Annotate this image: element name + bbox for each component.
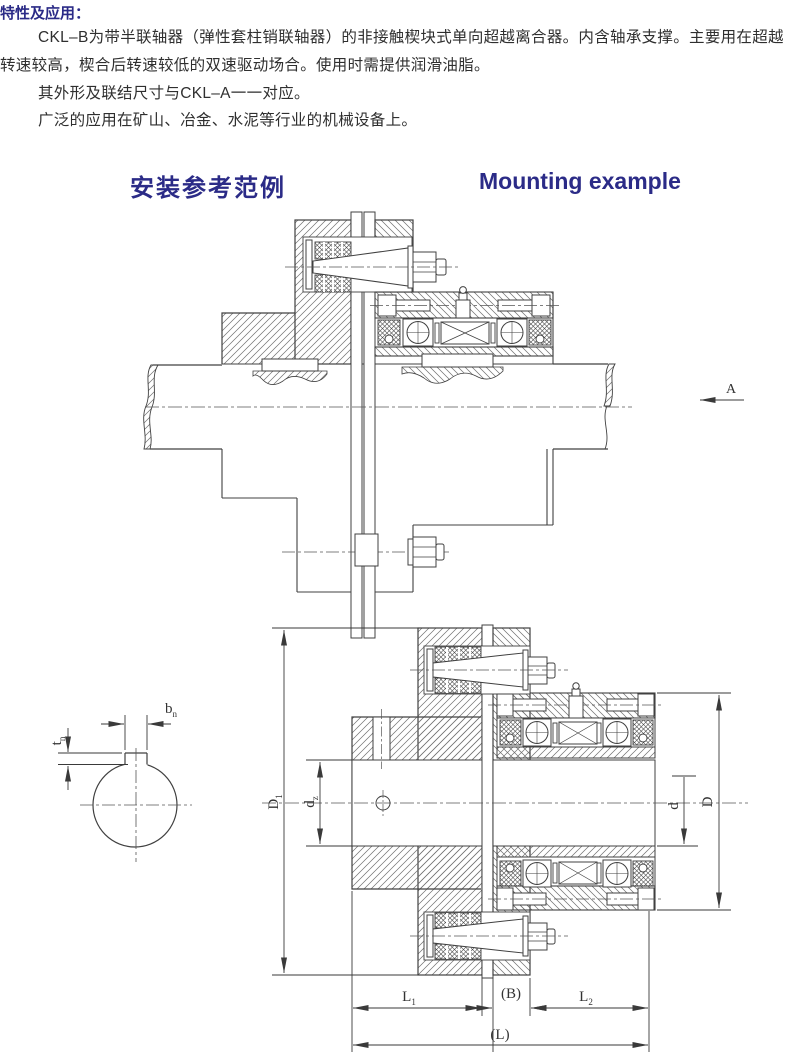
keyway-section <box>253 371 327 385</box>
elastic-pin-assembly <box>410 912 568 960</box>
exterior-outline <box>222 449 553 592</box>
dim-label-tn: tn <box>49 736 67 745</box>
dim-b-n <box>101 715 171 750</box>
dim-label-L: (L) <box>490 1027 509 1043</box>
dimension-drawing: bn tn <box>49 625 748 1052</box>
view-label: A <box>726 382 737 397</box>
key <box>262 359 318 371</box>
keyway-detail: bn tn <box>49 701 192 862</box>
mounting-example-drawing: A <box>144 212 744 638</box>
bearing-row-bottom <box>500 860 653 887</box>
technical-drawings: A bn <box>0 0 800 1058</box>
dim-label-d: d <box>666 802 682 810</box>
clutch-housing <box>370 287 560 384</box>
dim-label-B: (B) <box>501 986 521 1002</box>
bolt-nut <box>413 537 436 567</box>
dim-label-L1: L1 <box>402 989 416 1007</box>
dim-label-L2: L2 <box>579 989 593 1007</box>
coupling-section <box>262 625 748 978</box>
bearing-row-top <box>500 719 653 746</box>
catalog-page: 特性及应用： CKL–B为带半联轴器（弹性套柱销联轴器）的非接触楔块式单向超越离… <box>0 0 800 1058</box>
keyway-section <box>402 367 503 383</box>
grease-fitting <box>456 287 470 318</box>
sleeve-top <box>497 747 655 758</box>
dim-label-D: D <box>700 796 716 807</box>
elastic-pin-assembly <box>285 237 458 292</box>
dim-label-dz: dz <box>302 796 320 808</box>
sleeve-bottom <box>497 846 655 857</box>
key <box>422 354 493 367</box>
dim-label-bn: bn <box>165 701 178 719</box>
bearing-row <box>378 319 551 346</box>
flange-bolt <box>282 534 450 567</box>
right-shaft <box>553 364 615 449</box>
elastic-pin-assembly <box>410 646 568 694</box>
grease-fitting <box>569 683 583 718</box>
view-arrow-A: A <box>700 382 744 400</box>
shaft-break <box>604 364 615 406</box>
dim-label-D1: D1 <box>266 794 284 809</box>
